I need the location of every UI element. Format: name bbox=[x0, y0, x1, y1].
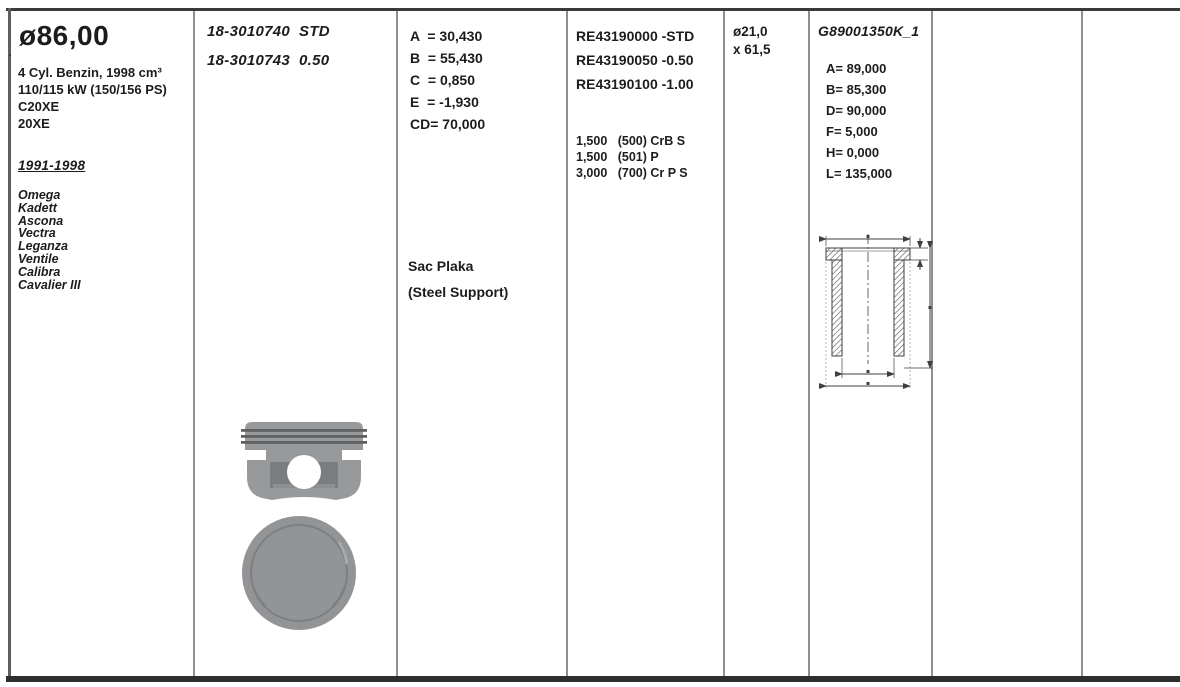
model-item: Omega bbox=[18, 189, 81, 202]
column-piston-part-numbers: 18-3010740 STD 18-3010743 0.50 bbox=[195, 11, 398, 676]
model-item: Ventile bbox=[18, 253, 81, 266]
steel-support-line: Sac Plaka bbox=[408, 253, 508, 279]
column-empty-2 bbox=[1083, 11, 1180, 676]
engine-spec-line: 4 Cyl. Benzin, 1998 cm³ bbox=[18, 64, 167, 81]
liner-dimension-line: L= 135,000 bbox=[826, 163, 892, 184]
model-item: Kadett bbox=[18, 202, 81, 215]
piston-side-view-image bbox=[239, 420, 369, 506]
column-bore-specs: ø86,00 4 Cyl. Benzin, 1998 cm³ 110/115 k… bbox=[11, 11, 195, 676]
piston-dimension-line: C = 0,850 bbox=[410, 69, 485, 91]
year-range: 1991-1998 bbox=[18, 158, 85, 173]
bore-diameter: ø86,00 bbox=[19, 20, 109, 52]
engine-spec-line: C20XE bbox=[18, 98, 167, 115]
liner-dimension-line: B= 85,300 bbox=[826, 79, 892, 100]
piston-dimension-line: A = 30,430 bbox=[410, 25, 485, 47]
ring-spec-line: 1,500 (500) CrB S bbox=[576, 133, 688, 149]
model-item: Calibra bbox=[18, 266, 81, 279]
table-bottom-border bbox=[6, 676, 1180, 682]
piston-top-view-image bbox=[239, 512, 359, 634]
model-item: Cavalier III bbox=[18, 279, 81, 292]
liner-dimension-line: F= 5,000 bbox=[826, 121, 892, 142]
piston-dimension-line: E = -1,930 bbox=[410, 91, 485, 113]
piston-dimension-line: CD= 70,000 bbox=[410, 113, 485, 135]
steel-support-line: (Steel Support) bbox=[408, 279, 508, 305]
ring-set-number-line: RE43190100 -1.00 bbox=[576, 72, 694, 96]
engine-spec-line: 20XE bbox=[18, 115, 167, 132]
column-cylinder-liner: G89001350K_1 A= 89,000 B= 85,300 D= 90,0… bbox=[810, 11, 933, 676]
cylinder-liner-drawing bbox=[816, 228, 936, 396]
ring-spec-lines: 1,500 (500) CrB S 1,500 (501) P 3,000 (7… bbox=[576, 133, 688, 181]
pin-length: x 61,5 bbox=[733, 41, 771, 59]
ring-set-numbers: RE43190000 -STD RE43190050 -0.50 RE43190… bbox=[576, 24, 694, 96]
liner-dimension-line: A= 89,000 bbox=[826, 58, 892, 79]
column-pin-size: ø21,0 x 61,5 bbox=[725, 11, 810, 676]
engine-spec-line: 110/115 kW (150/156 PS) bbox=[18, 81, 167, 98]
column-empty-1 bbox=[933, 11, 1083, 676]
liner-dimension-line: D= 90,000 bbox=[826, 100, 892, 121]
engine-spec-lines: 4 Cyl. Benzin, 1998 cm³ 110/115 kW (150/… bbox=[18, 64, 167, 132]
liner-dimension-line: H= 0,000 bbox=[826, 142, 892, 163]
model-list: Omega Kadett Ascona Vectra Leganza Venti… bbox=[18, 189, 81, 291]
ring-spec-line: 1,500 (501) P bbox=[576, 149, 688, 165]
pin-size: ø21,0 x 61,5 bbox=[733, 23, 771, 59]
ring-spec-line: 3,000 (700) Cr P S bbox=[576, 165, 688, 181]
pin-diameter: ø21,0 bbox=[733, 23, 771, 41]
steel-support-label: Sac Plaka (Steel Support) bbox=[408, 253, 508, 305]
column-ring-set: RE43190000 -STD RE43190050 -0.50 RE43190… bbox=[568, 11, 725, 676]
catalog-page: ø86,00 4 Cyl. Benzin, 1998 cm³ 110/115 k… bbox=[0, 0, 1180, 687]
column-piston-dimensions: A = 30,430 B = 55,430 C = 0,850 E = -1,9… bbox=[398, 11, 568, 676]
piston-part-numbers: 18-3010740 STD 18-3010743 0.50 bbox=[207, 23, 330, 81]
liner-dimension-lines: A= 89,000 B= 85,300 D= 90,000 F= 5,000 H… bbox=[826, 58, 892, 184]
ring-set-number-line: RE43190000 -STD bbox=[576, 24, 694, 48]
ring-set-number-line: RE43190050 -0.50 bbox=[576, 48, 694, 72]
piston-dimension-lines: A = 30,430 B = 55,430 C = 0,850 E = -1,9… bbox=[410, 25, 485, 135]
liner-code: G89001350K_1 bbox=[818, 23, 919, 39]
piston-dimension-line: B = 55,430 bbox=[410, 47, 485, 69]
part-number-line: 18-3010743 0.50 bbox=[207, 52, 330, 69]
part-number-line: 18-3010740 STD bbox=[207, 23, 330, 40]
